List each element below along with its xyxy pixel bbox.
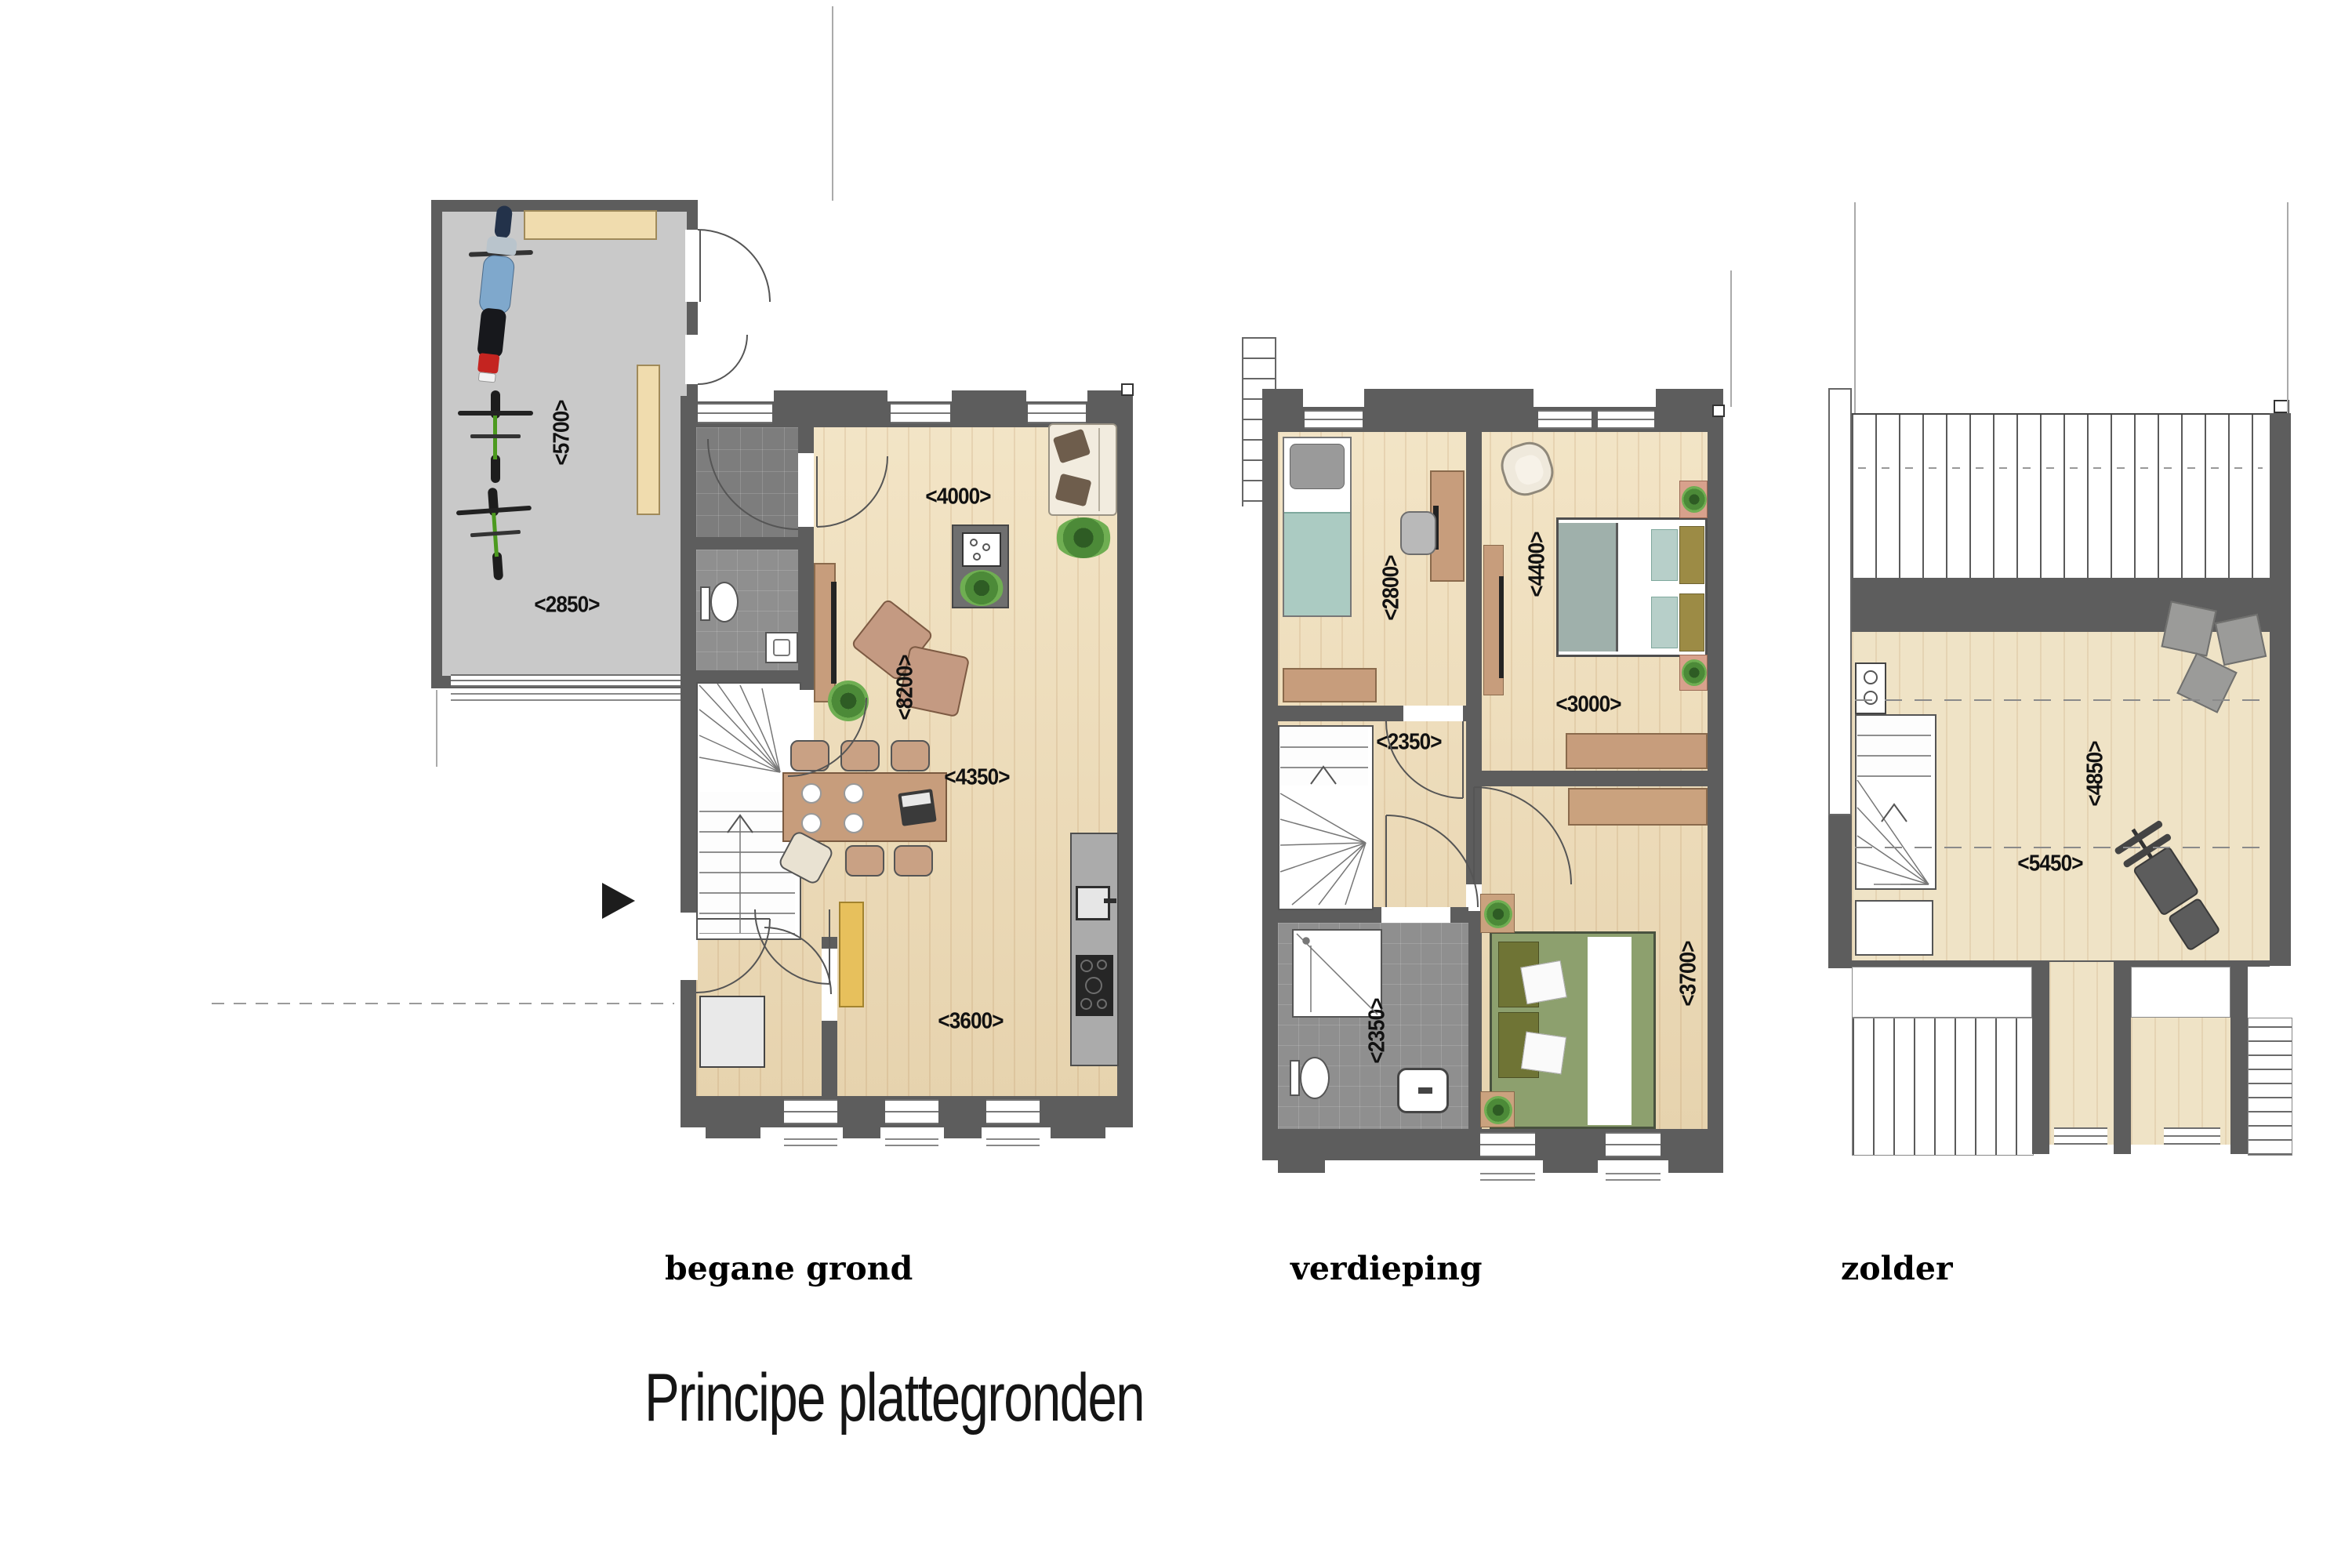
floor-label-zolder: zolder [1841, 1250, 1953, 1287]
floor-label-begane-grond: begane grond [665, 1250, 913, 1287]
floorplan-sheet: <5700> <2850> <4000> <8200> <4350> <3600… [0, 0, 2352, 1568]
sheet-title: Principe plattegronden [644, 1359, 1144, 1437]
linework-overlay [0, 0, 2352, 1568]
floor-label-verdieping: verdieping [1290, 1250, 1483, 1287]
